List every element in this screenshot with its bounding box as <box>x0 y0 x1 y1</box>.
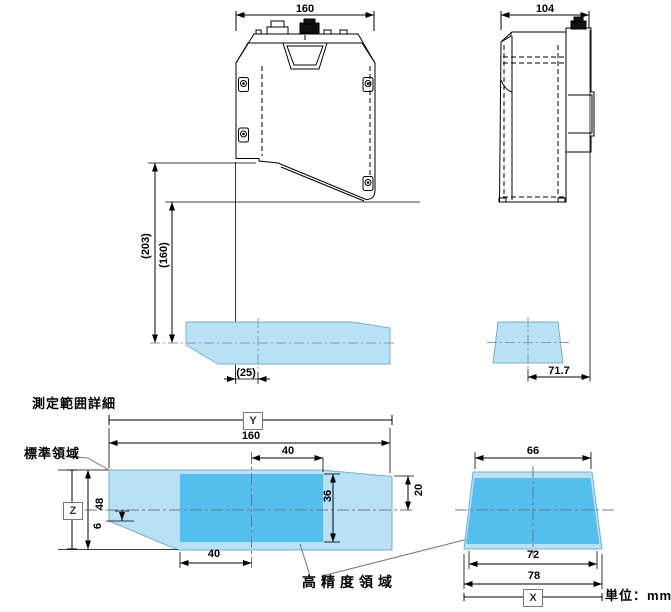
diagram-title: 測定範囲詳細 <box>32 398 116 410</box>
range-front-right-height-dim: 20 <box>413 470 425 510</box>
range-side-top-width-dim: 66 <box>513 445 553 457</box>
front-center-offset-dim: (25) <box>226 367 266 379</box>
range-front-hp-right-dim: 40 <box>268 445 308 457</box>
axis-y-label: Y <box>243 412 263 430</box>
high-precision-area-label: 高精度領域 <box>302 576 397 588</box>
mounting-tabs <box>239 78 374 191</box>
axis-z-label: Z <box>63 502 83 520</box>
range-side-bottom-width-dim: 78 <box>514 570 554 582</box>
front-top-width-dim: 160 <box>285 3 325 15</box>
dimension-diagram: 160 (203) (160) (25) 104 71.7 測定範囲詳細 標準領… <box>0 0 671 612</box>
range-front-total-width-dim: 160 <box>231 430 271 442</box>
range-front-hp-left-dim: 40 <box>194 548 234 560</box>
side-top-width-dim: 104 <box>525 3 565 15</box>
range-front-hp-height-dim: 36 <box>322 476 334 516</box>
range-front-below-center-dim: 6 <box>92 506 104 546</box>
range-side-hp-bottom-dim: 72 <box>513 549 553 561</box>
front-measure-area <box>186 322 390 364</box>
front-ref-height-inner-dim: (160) <box>158 235 170 275</box>
axis-x-label: X <box>523 589 543 607</box>
front-ref-height-outer-dim: (203) <box>140 226 152 266</box>
side-rear-offset-dim: 71.7 <box>539 365 579 377</box>
standard-area-label: 標準領域 <box>24 448 80 460</box>
unit-label: 単位：mm <box>605 590 671 602</box>
